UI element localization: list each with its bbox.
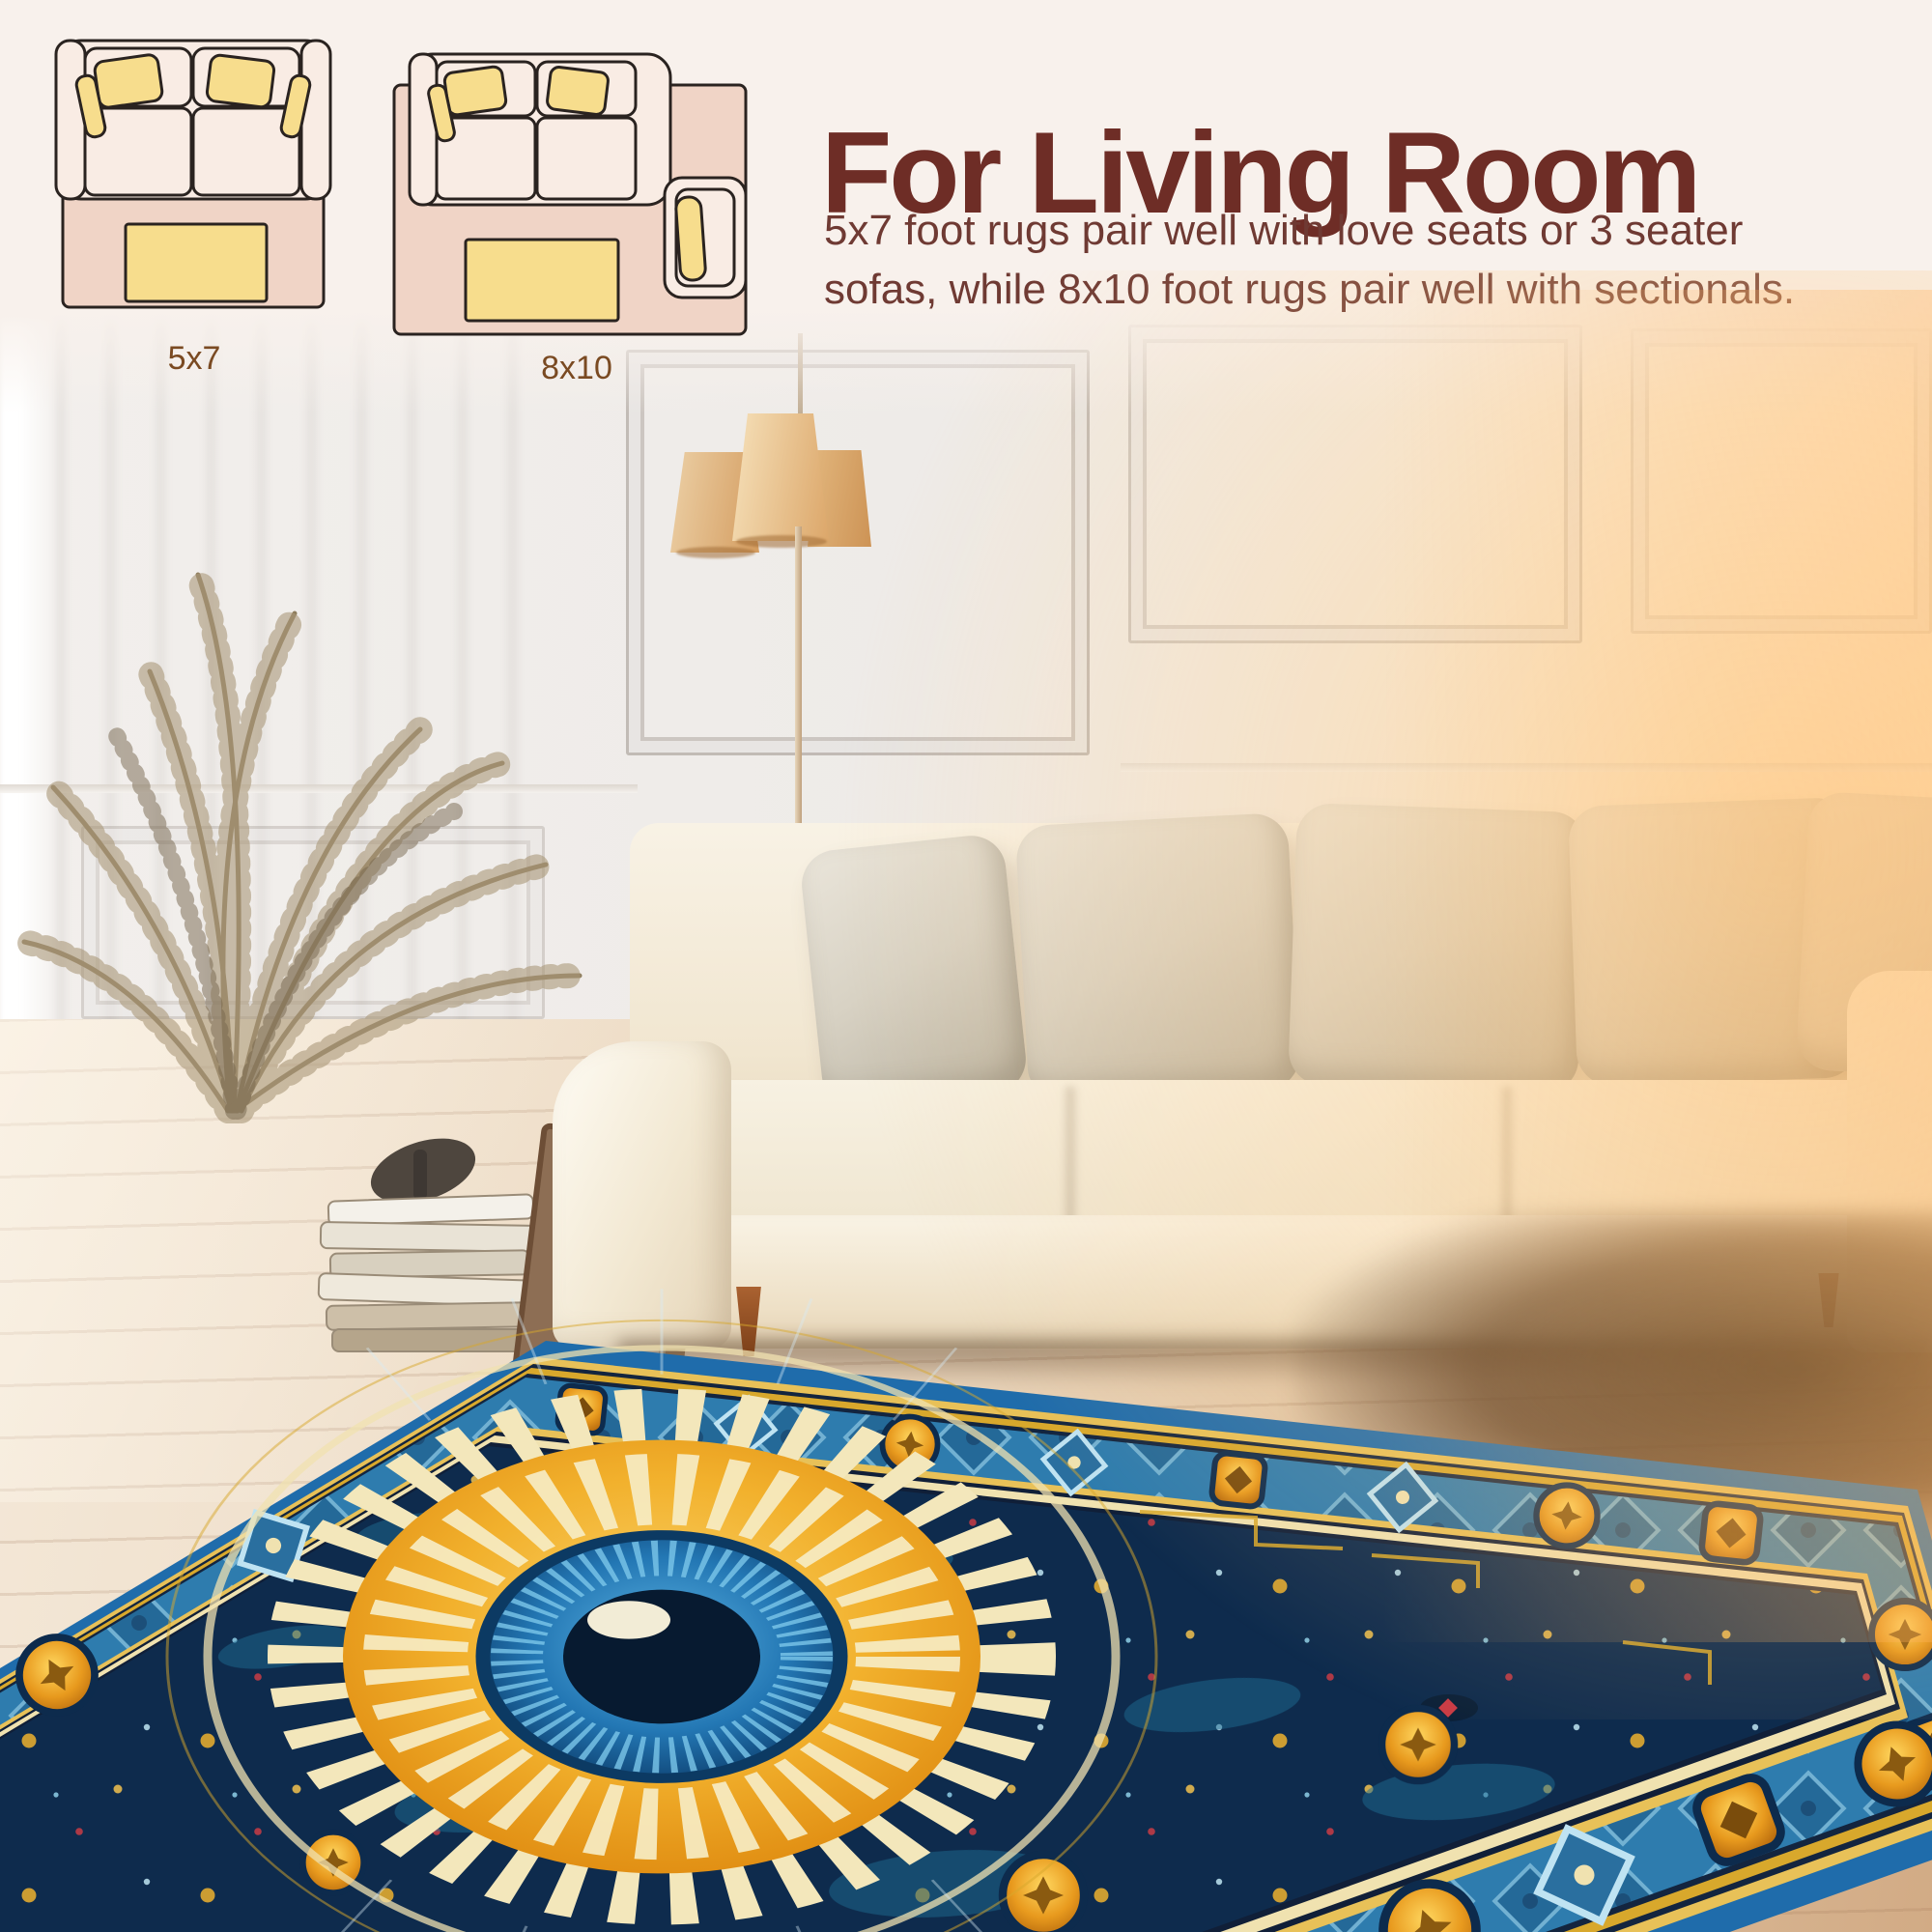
coffee-table-icon	[126, 224, 267, 301]
diagram-label-5x7: 5x7	[168, 340, 221, 378]
rug-product-infographic: 5x7 8x10 For Living Room 5x7 foot rugs p…	[0, 0, 1932, 1932]
body-line-1: 5x7 foot rugs pair well with love seats …	[824, 201, 1795, 260]
sofa-top-view-icon	[56, 41, 330, 199]
diagram-8x10	[394, 54, 746, 334]
rug-size-diagrams	[0, 0, 792, 415]
coffee-table-icon	[466, 240, 618, 321]
pupil-highlight	[587, 1601, 670, 1638]
sofa-top-view-icon	[410, 54, 670, 205]
sunlight-wash	[1198, 290, 1932, 1642]
diagram-5x7	[56, 41, 330, 307]
diagram-label-8x10: 8x10	[541, 350, 612, 387]
